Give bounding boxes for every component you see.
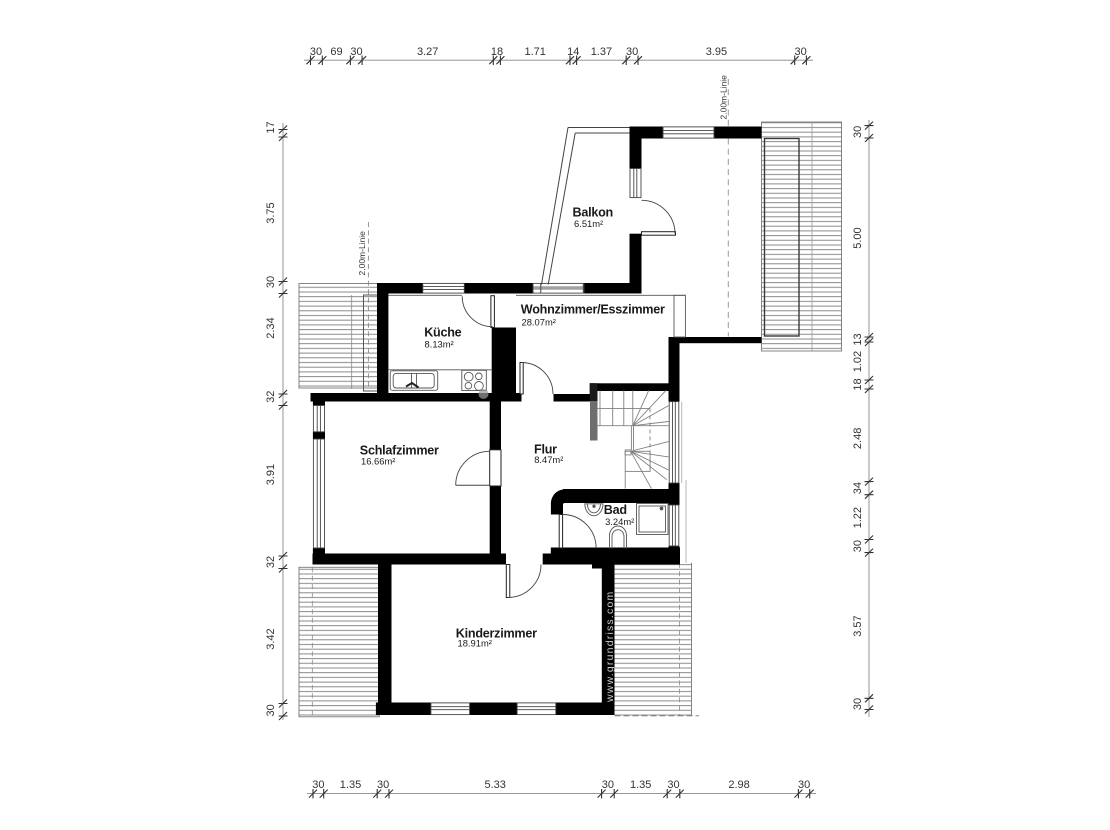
svg-text:28.07m²: 28.07m² <box>522 316 556 327</box>
svg-text:30: 30 <box>265 276 277 288</box>
svg-text:3.75: 3.75 <box>265 202 277 223</box>
svg-text:1.35: 1.35 <box>630 779 651 791</box>
svg-text:8.13m²: 8.13m² <box>425 338 454 349</box>
svg-text:2.98: 2.98 <box>728 779 749 791</box>
svg-text:30: 30 <box>626 46 638 58</box>
svg-text:2.00m-Linie: 2.00m-Linie <box>357 231 367 276</box>
svg-text:69: 69 <box>330 46 342 58</box>
svg-text:32: 32 <box>265 391 277 403</box>
svg-text:1.22: 1.22 <box>852 507 864 528</box>
svg-text:3.91: 3.91 <box>265 464 277 485</box>
svg-text:3.95: 3.95 <box>706 46 727 58</box>
svg-text:3.24m²: 3.24m² <box>605 516 634 527</box>
svg-text:30: 30 <box>312 779 324 791</box>
svg-text:1.02: 1.02 <box>852 351 864 372</box>
svg-text:30: 30 <box>852 126 864 138</box>
svg-text:18: 18 <box>852 378 864 390</box>
svg-text:30: 30 <box>667 779 679 791</box>
svg-text:32: 32 <box>265 556 277 568</box>
svg-text:3.42: 3.42 <box>265 628 277 649</box>
svg-text:30: 30 <box>852 540 864 552</box>
svg-text:30: 30 <box>310 46 322 58</box>
svg-text:6.51m²: 6.51m² <box>574 218 603 229</box>
svg-text:3.27: 3.27 <box>417 46 438 58</box>
svg-text:1.37: 1.37 <box>591 46 612 58</box>
svg-text:1.35: 1.35 <box>340 779 361 791</box>
svg-text:30: 30 <box>852 698 864 710</box>
svg-text:Bad: Bad <box>604 503 627 517</box>
svg-text:34: 34 <box>852 482 864 494</box>
svg-text:5.33: 5.33 <box>484 779 505 791</box>
svg-text:18: 18 <box>491 46 503 58</box>
svg-text:8.47m²: 8.47m² <box>534 454 563 465</box>
svg-text:30: 30 <box>602 779 614 791</box>
svg-text:Wohnzimmer/Esszimmer: Wohnzimmer/Esszimmer <box>521 303 665 317</box>
svg-text:5.00: 5.00 <box>852 227 864 248</box>
svg-text:3.57: 3.57 <box>852 615 864 636</box>
svg-text:2.34: 2.34 <box>265 317 277 338</box>
svg-text:www.grundriss.com: www.grundriss.com <box>604 591 616 703</box>
svg-text:16.66m²: 16.66m² <box>361 455 395 466</box>
svg-text:30: 30 <box>377 779 389 791</box>
svg-text:30: 30 <box>265 704 277 716</box>
svg-text:14: 14 <box>567 46 579 58</box>
svg-text:2.00m-Linie: 2.00m-Linie <box>719 75 729 120</box>
svg-text:2.48: 2.48 <box>852 428 864 449</box>
svg-text:30: 30 <box>798 779 810 791</box>
svg-text:17: 17 <box>265 121 277 133</box>
svg-text:30: 30 <box>350 46 362 58</box>
svg-text:13: 13 <box>852 333 864 345</box>
svg-text:18.91m²: 18.91m² <box>458 638 492 649</box>
svg-text:1.71: 1.71 <box>524 46 545 58</box>
svg-text:30: 30 <box>794 46 806 58</box>
